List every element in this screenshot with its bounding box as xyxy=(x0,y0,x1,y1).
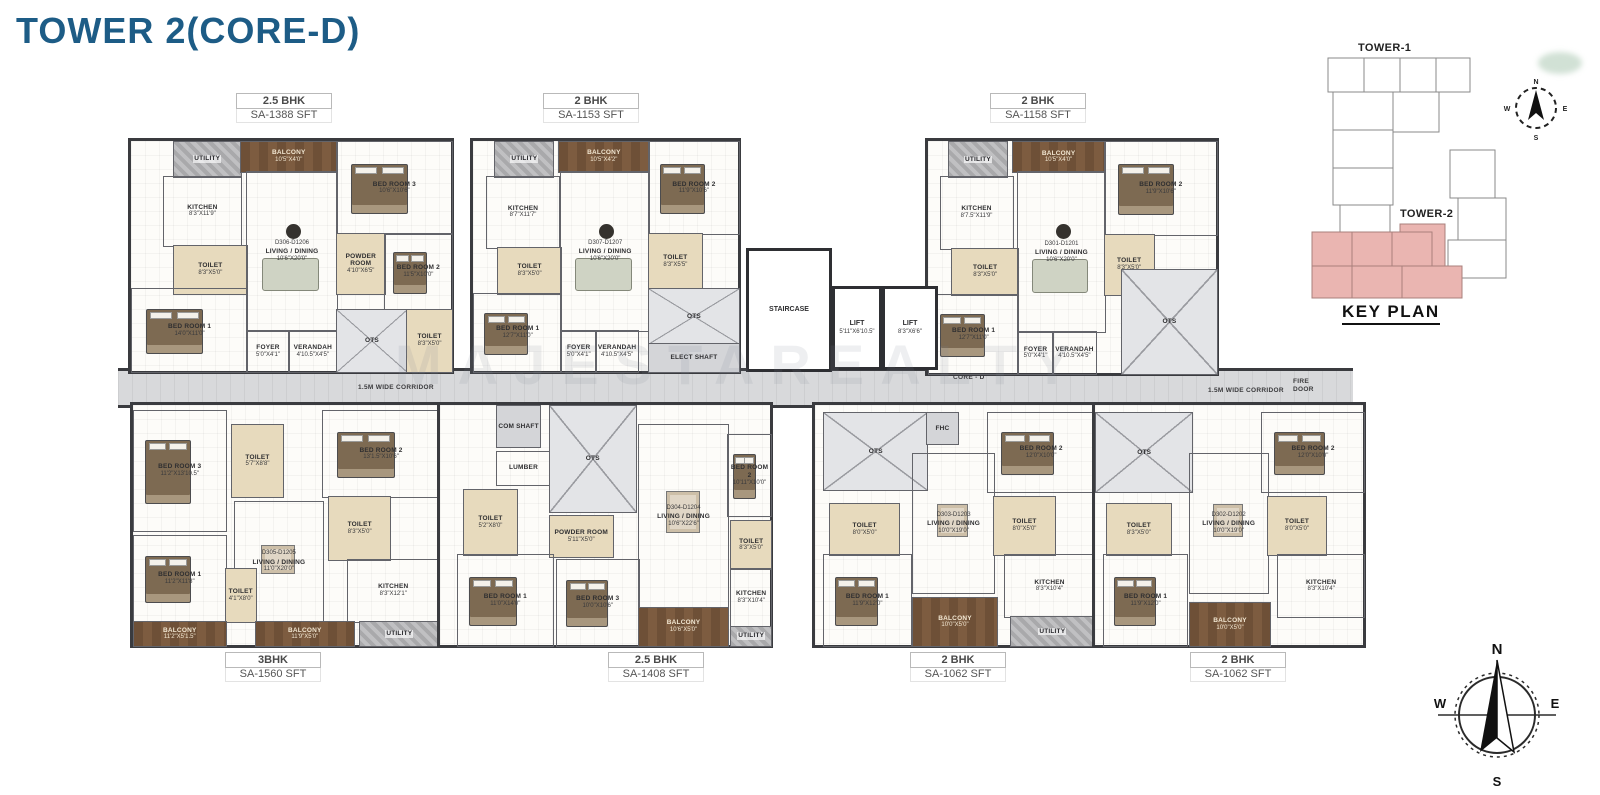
unit-d304-plan: COM SHAFTLUMBEROTSTOILET5'2"X8'0"POWDER … xyxy=(437,402,773,648)
room-utility: UTILITY xyxy=(173,141,242,178)
room-bed-room-2: BED ROOM 212'0"X10'0" xyxy=(1261,412,1365,493)
room-bed-room-2: BED ROOM 212'0"X10'0" xyxy=(987,412,1095,493)
room-toilet: TOILET5'7"X8'8" xyxy=(231,424,285,498)
unit-tag-d302: 2 BHK SA-1062 SFT xyxy=(1190,652,1286,682)
unit-d303-plan: OTSFHCBED ROOM 212'0"X10'0"TOILET8'0"X5'… xyxy=(812,402,1096,648)
room-living-dining: D306-D1206LIVING / DINING10'6"X20'0" xyxy=(246,171,338,332)
room-living-dining: D304-D1204LIVING / DINING10'6"X22'6" xyxy=(638,424,729,608)
room-utility: UTILITY xyxy=(730,626,772,647)
room-toilet: TOILET8'0"X5'0" xyxy=(993,496,1056,556)
room-balcony: BALCONY10'6"X5'0" xyxy=(638,607,729,647)
room-fhc: FHC xyxy=(926,412,959,445)
room-bed-room-2: BED ROOM 210'11"X10'0" xyxy=(727,434,772,518)
room-balcony: BALCONY10'0"X5'0" xyxy=(1189,602,1271,647)
room-bed-room-1: BED ROOM 111'0"X14'0" xyxy=(457,554,555,647)
page-title: TOWER 2(CORE-D) xyxy=(16,10,360,52)
room-balcony: BALCONY10'0"X5'0" xyxy=(912,597,997,647)
room-bed-room-2: BED ROOM 211'9"X10'6" xyxy=(1104,141,1218,236)
room-toilet: TOILET8'3"X5'5" xyxy=(648,233,703,290)
key-plan-compass-icon: N S W E xyxy=(1504,79,1568,142)
room-toilet: TOILET8'0"X5'0" xyxy=(829,503,901,555)
north-compass-icon: N S W E xyxy=(1432,640,1562,790)
room-toilet: TOILET8'0"X5'0" xyxy=(1267,496,1328,556)
room-balcony: BALCONY10'5"X4'0" xyxy=(240,141,338,173)
unit-d305-plan: BED ROOM 311'2"X13'10.5"TOILET5'7"X8'8"B… xyxy=(130,402,441,648)
room-toilet: TOILET5'2"X8'0" xyxy=(463,489,518,556)
svg-text:S: S xyxy=(1493,774,1502,789)
tower2-label: TOWER-2 xyxy=(1400,208,1453,220)
unit-tag-d306: 2.5 BHK SA-1388 SFT xyxy=(236,93,332,123)
room-ots: OTS xyxy=(1095,412,1193,493)
room-kitchen: KITCHEN8'7"X11'7" xyxy=(486,176,560,249)
room-living-dining: D307-D1207LIVING / DINING10'6"X20'0" xyxy=(560,171,649,332)
key-plan-map: N S W E xyxy=(1300,30,1600,345)
room-kitchen: KITCHEN8'3"X10'4" xyxy=(1277,554,1365,618)
room-ots: OTS xyxy=(1121,269,1218,375)
room-kitchen: KITCHEN8'3"X12'1" xyxy=(347,559,441,623)
room-foyer: FOYER5'0"X4'1" xyxy=(246,330,290,373)
unit-d302-plan: OTSBED ROOM 212'0"X10'0"TOILET8'3"X5'0"D… xyxy=(1092,402,1366,648)
room-toilet: TOILET4'1"X8'0" xyxy=(225,568,258,623)
room-kitchen: KITCHEN8'3"X10'4" xyxy=(730,568,772,628)
room-bed-room-1: BED ROOM 111'9"X12'0" xyxy=(823,554,911,647)
room-bed-room-2: BED ROOM 211'5"X10'0" xyxy=(384,233,453,311)
room-balcony: BALCONY11'2"X5'1.5" xyxy=(133,621,227,647)
unit-tag-d303: 2 BHK SA-1062 SFT xyxy=(910,652,1006,682)
key-plan: N S W E TOWER-1 TOWER-2 KEY PLAN xyxy=(1300,30,1600,345)
room-verandah: VERANDAH4'10.5"X4'5" xyxy=(288,330,338,373)
room-living-dining: D303-D1203LIVING / DINING10'0"X19'0" xyxy=(912,453,995,594)
fire-door-label: FIRE DOOR xyxy=(1293,378,1317,395)
room-kitchen: KITCHEN8'7.5"X11'9" xyxy=(940,176,1014,250)
room-kitchen: KITCHEN8'3"X10'4" xyxy=(1004,554,1095,618)
svg-text:W: W xyxy=(1434,696,1447,711)
room-bed-room-1: BED ROOM 111'9"X12'0" xyxy=(1103,554,1188,647)
room-powder-room: POWDER ROOM4'10"X6'5" xyxy=(336,233,386,295)
room-com-shaft: COM SHAFT xyxy=(496,405,541,448)
room-balcony: BALCONY10'5"X4'0" xyxy=(1012,141,1106,173)
room-utility: UTILITY xyxy=(1010,616,1095,647)
room-powder-room: POWDER ROOM5'11"X5'0" xyxy=(549,515,614,558)
unit-tag-d304: 2.5 BHK SA-1408 SFT xyxy=(608,652,704,682)
room-lumber: LUMBER xyxy=(496,451,551,487)
room-living-dining: D302-D1202LIVING / DINING10'0"X19'0" xyxy=(1189,453,1269,594)
room-toilet: TOILET8'3"X5'0" xyxy=(328,496,391,560)
room-bed-room-2: BED ROOM 213'1.5"X10'6" xyxy=(322,410,440,498)
watermark: MAJESTAREALTY xyxy=(395,332,1086,397)
tower1-label: TOWER-1 xyxy=(1358,42,1411,54)
room-utility: UTILITY xyxy=(359,621,440,647)
room-bed-room-1: BED ROOM 111'2"X11'8" xyxy=(133,535,227,623)
svg-text:E: E xyxy=(1563,106,1568,113)
unit-tag-d307: 2 BHK SA-1153 SFT xyxy=(543,93,639,123)
room-bed-room-3: BED ROOM 310'6"X10'6" xyxy=(336,141,453,235)
room-bed-room-3: BED ROOM 310'0"X10'6" xyxy=(556,559,641,647)
room-utility: UTILITY xyxy=(494,141,554,178)
unit-tag-d301: 2 BHK SA-1158 SFT xyxy=(990,93,1086,123)
room-toilet: TOILET8'3"X5'0" xyxy=(730,520,772,570)
room-bed-room-1: BED ROOM 114'0"X11'0" xyxy=(131,288,248,373)
corridor-label-right: 1.5M WIDE CORRIDOR xyxy=(1208,387,1284,394)
key-plan-title: KEY PLAN xyxy=(1342,302,1440,325)
room-toilet: TOILET8'3"X5'0" xyxy=(1106,503,1172,555)
svg-text:N: N xyxy=(1492,641,1503,658)
svg-text:E: E xyxy=(1551,696,1560,711)
svg-text:S: S xyxy=(1534,135,1539,142)
room-balcony: BALCONY10'5"X4'2" xyxy=(558,141,650,173)
svg-text:W: W xyxy=(1504,106,1511,113)
room-bed-room-3: BED ROOM 311'2"X13'10.5" xyxy=(133,410,227,532)
room-ots: OTS xyxy=(549,405,637,513)
room-utility: UTILITY xyxy=(948,141,1008,178)
svg-text:N: N xyxy=(1533,79,1538,86)
room-toilet: TOILET8'3"X5'0" xyxy=(497,247,563,295)
room-toilet: TOILET8'3"X5'0" xyxy=(951,248,1019,296)
room-kitchen: KITCHEN8'3"X11'9" xyxy=(163,176,242,247)
room-bed-room-2: BED ROOM 211'9"X10'6" xyxy=(648,141,740,235)
room-balcony: BALCONY11'9"X5'0" xyxy=(255,621,355,647)
floor-plan-page: TOWER 2(CORE-D) MAJESTAREALTY 1.5M WIDE … xyxy=(0,0,1600,795)
room-living-dining: D301-D1201LIVING / DINING10'6"X20'0" xyxy=(1017,171,1105,333)
unit-tag-d305: 3BHK SA-1560 SFT xyxy=(225,652,321,682)
